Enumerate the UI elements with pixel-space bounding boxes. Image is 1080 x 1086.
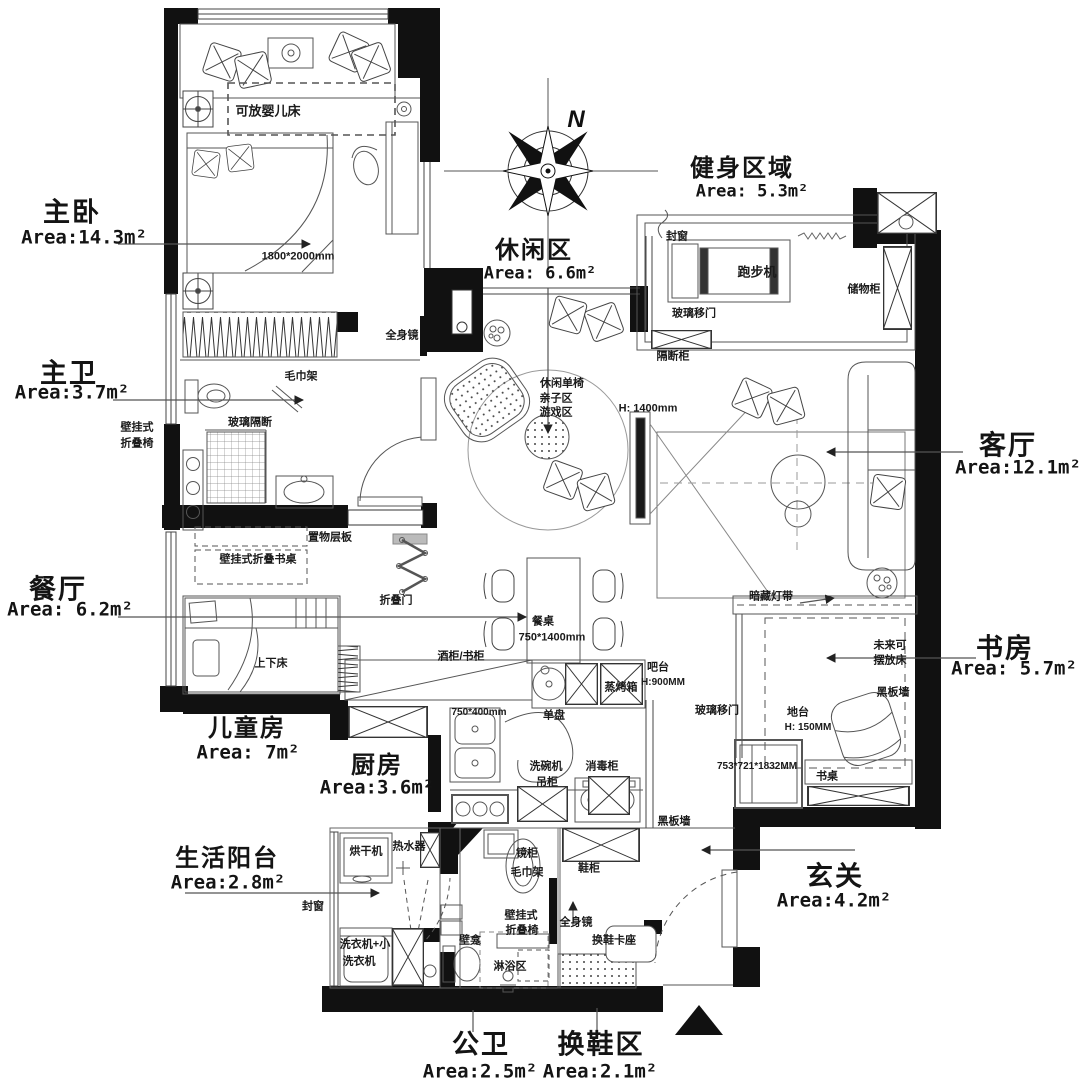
room-area-fitness: Area: 5.3m² bbox=[696, 184, 809, 201]
room-label-living: 客厅 bbox=[979, 433, 1037, 460]
ann-treadmill: 跑步机 bbox=[737, 266, 776, 279]
room-area-laundry: Area:2.8m² bbox=[171, 874, 285, 893]
ann-platform: 地台 bbox=[787, 708, 809, 719]
bunk-bed bbox=[185, 598, 338, 692]
shoe-cabinet bbox=[563, 828, 639, 861]
ann-study-desk: 书桌 bbox=[816, 772, 838, 783]
room-area-study: Area: 5.7m² bbox=[951, 660, 1077, 679]
leisure-chair bbox=[436, 350, 538, 451]
ann-mirror-2: 全身镜 bbox=[560, 918, 593, 929]
ann-washer-2: 洗衣机 bbox=[343, 957, 376, 968]
dining-table bbox=[527, 558, 580, 663]
ann-shoe-cabinet: 鞋柜 bbox=[578, 864, 600, 875]
ann-shower-area: 淋浴区 bbox=[494, 962, 527, 973]
study-armchair bbox=[827, 688, 904, 769]
ann-table-size: 750*1400mm bbox=[519, 633, 586, 644]
kitchen-sink bbox=[450, 708, 500, 782]
ann-bunk-bed: 上下床 bbox=[255, 659, 288, 670]
ann-blackboard-2: 黑板墙 bbox=[877, 688, 910, 699]
master-desk bbox=[386, 122, 418, 234]
room-label-shoe: 换鞋区 bbox=[558, 1032, 645, 1059]
room-label-fitness: 健身区域 bbox=[690, 157, 794, 181]
ann-washer-1: 洗衣机+小 bbox=[340, 940, 390, 951]
room-label-public-bath: 公卫 bbox=[452, 1032, 510, 1059]
ann-shelf: 置物层板 bbox=[308, 533, 352, 544]
room-area-leisure: Area: 6.6m² bbox=[484, 266, 597, 283]
ann-dining-table: 餐桌 bbox=[532, 617, 554, 628]
kids-closet bbox=[338, 646, 360, 692]
ann-bar-height: H:900MM bbox=[641, 678, 685, 688]
ann-future-bed-1: 未来可 bbox=[874, 641, 907, 652]
divider-cabinet bbox=[652, 330, 712, 349]
room-area-public-bath: Area:2.5m² bbox=[423, 1063, 537, 1082]
room-label-kitchen: 厨房 bbox=[351, 754, 403, 778]
round-table bbox=[525, 415, 569, 459]
ann-divider-cabinet: 隔断柜 bbox=[657, 352, 690, 363]
ann-steam-oven: 蒸烤箱 bbox=[605, 683, 638, 694]
ann-light-strip: 暗藏灯带 bbox=[749, 592, 793, 603]
north-label: N bbox=[567, 106, 584, 134]
desk-chair bbox=[350, 148, 382, 187]
storage-cabinet bbox=[883, 247, 911, 329]
room-area-master-bath: Area:3.7m² bbox=[15, 384, 129, 403]
ann-game-zone: 游戏区 bbox=[540, 408, 573, 419]
room-area-shoe: Area:2.1m² bbox=[543, 1063, 657, 1082]
ann-sealed-window-1: 封窗 bbox=[302, 902, 324, 913]
ann-wardrobe-size: 753*721*1832MM bbox=[717, 762, 797, 772]
folding-door bbox=[399, 540, 425, 592]
room-label-kids: 儿童房 bbox=[208, 717, 286, 741]
room-area-living: Area:12.1m² bbox=[955, 459, 1080, 478]
room-label-master: 主卧 bbox=[43, 200, 101, 227]
ann-shoe-bench: 换鞋卡座 bbox=[592, 936, 636, 947]
plant bbox=[484, 320, 510, 346]
ann-sink-size: 750*400mm bbox=[451, 708, 506, 718]
toilet2 bbox=[454, 947, 480, 981]
ann-wall-chair-3: 壁挂式 bbox=[505, 911, 538, 922]
shoe-cabinet2 bbox=[588, 776, 629, 814]
master-bedroom bbox=[183, 31, 418, 357]
ann-glass-door-1: 玻璃移门 bbox=[672, 309, 716, 320]
ann-glass-partition: 玻璃隔断 bbox=[228, 418, 272, 429]
ann-niche: 壁龛 bbox=[459, 936, 481, 947]
room-area-kitchen: Area:3.6m² bbox=[320, 779, 434, 798]
ann-water-heater: 热水器 bbox=[393, 842, 426, 853]
room-area-kids: Area: 7m² bbox=[197, 744, 300, 763]
toilet-tank bbox=[185, 380, 198, 413]
ann-blackboard-1: 黑板墙 bbox=[658, 817, 691, 828]
door-swing bbox=[360, 437, 426, 501]
floorplan-drawing bbox=[0, 0, 1080, 1086]
ann-sealed-window-2: 封窗 bbox=[666, 232, 688, 243]
ann-wall-chair-2: 折叠椅 bbox=[121, 439, 154, 450]
ann-towel-rack: 毛巾架 bbox=[285, 372, 318, 383]
ann-wine-cabinet: 酒柜/书柜 bbox=[437, 652, 484, 663]
ann-wall-chair-4: 折叠椅 bbox=[506, 926, 539, 937]
ann-parent-zone: 亲子区 bbox=[540, 394, 573, 405]
wall-niche bbox=[452, 290, 472, 334]
ann-platform-height: H: 150MM bbox=[785, 723, 832, 733]
ann-glass-door-2: 玻璃移门 bbox=[695, 706, 739, 717]
ann-leisure-chair: 休闲单椅 bbox=[540, 379, 584, 390]
ann-bar: 吧台 bbox=[647, 663, 669, 674]
ann-bed-size: 1800*2000mm bbox=[262, 252, 335, 263]
ann-folding-door: 折叠门 bbox=[380, 596, 413, 607]
shower-head bbox=[503, 971, 513, 981]
room-area-dining: Area: 6.2m² bbox=[7, 601, 133, 620]
ann-storage: 储物柜 bbox=[848, 285, 881, 296]
ann-single-basin: 单盘 bbox=[543, 711, 565, 722]
shower-floor bbox=[207, 432, 265, 503]
plant2 bbox=[867, 568, 897, 598]
room-label-laundry: 生活阳台 bbox=[175, 847, 279, 871]
living-room bbox=[630, 362, 915, 598]
fitness-area bbox=[652, 192, 937, 348]
bath-door bbox=[358, 497, 422, 506]
ann-dishwasher: 洗碗机 bbox=[530, 762, 563, 773]
single-basin bbox=[533, 668, 565, 700]
ann-wall-chair-1: 壁挂式 bbox=[121, 423, 154, 434]
ann-mirror-cabinet: 镜柜 bbox=[516, 849, 538, 860]
entry-marker-triangle bbox=[675, 1005, 723, 1035]
ann-mirror-1: 全身镜 bbox=[386, 331, 419, 342]
ann-disinfect: 消毒柜 bbox=[586, 762, 619, 773]
ann-crib: 可放婴儿床 bbox=[235, 105, 300, 118]
ann-fold-desk: 壁挂式折叠书桌 bbox=[220, 555, 297, 566]
ann-hanging-cabinet: 吊柜 bbox=[536, 778, 558, 789]
master-wardrobe bbox=[183, 312, 337, 357]
floorplan: 主卧 Area:14.3m² 主卫 Area:3.7m² 餐厅 Area: 6.… bbox=[0, 0, 1080, 1086]
study-wardrobe bbox=[735, 740, 802, 808]
ann-tv-height: H: 1400mm bbox=[619, 404, 678, 415]
entry-door bbox=[722, 870, 737, 947]
room-label-entry: 玄关 bbox=[806, 864, 864, 891]
ann-future-bed-2: 摆放床 bbox=[874, 656, 907, 667]
public-bath bbox=[441, 776, 737, 992]
ann-towel-rack-2: 毛巾架 bbox=[511, 868, 544, 879]
room-label-leisure: 休闲区 bbox=[495, 239, 573, 263]
room-area-entry: Area:4.2m² bbox=[777, 892, 891, 911]
room-area-master: Area:14.3m² bbox=[21, 229, 147, 248]
ann-dryer: 烘干机 bbox=[350, 847, 383, 858]
